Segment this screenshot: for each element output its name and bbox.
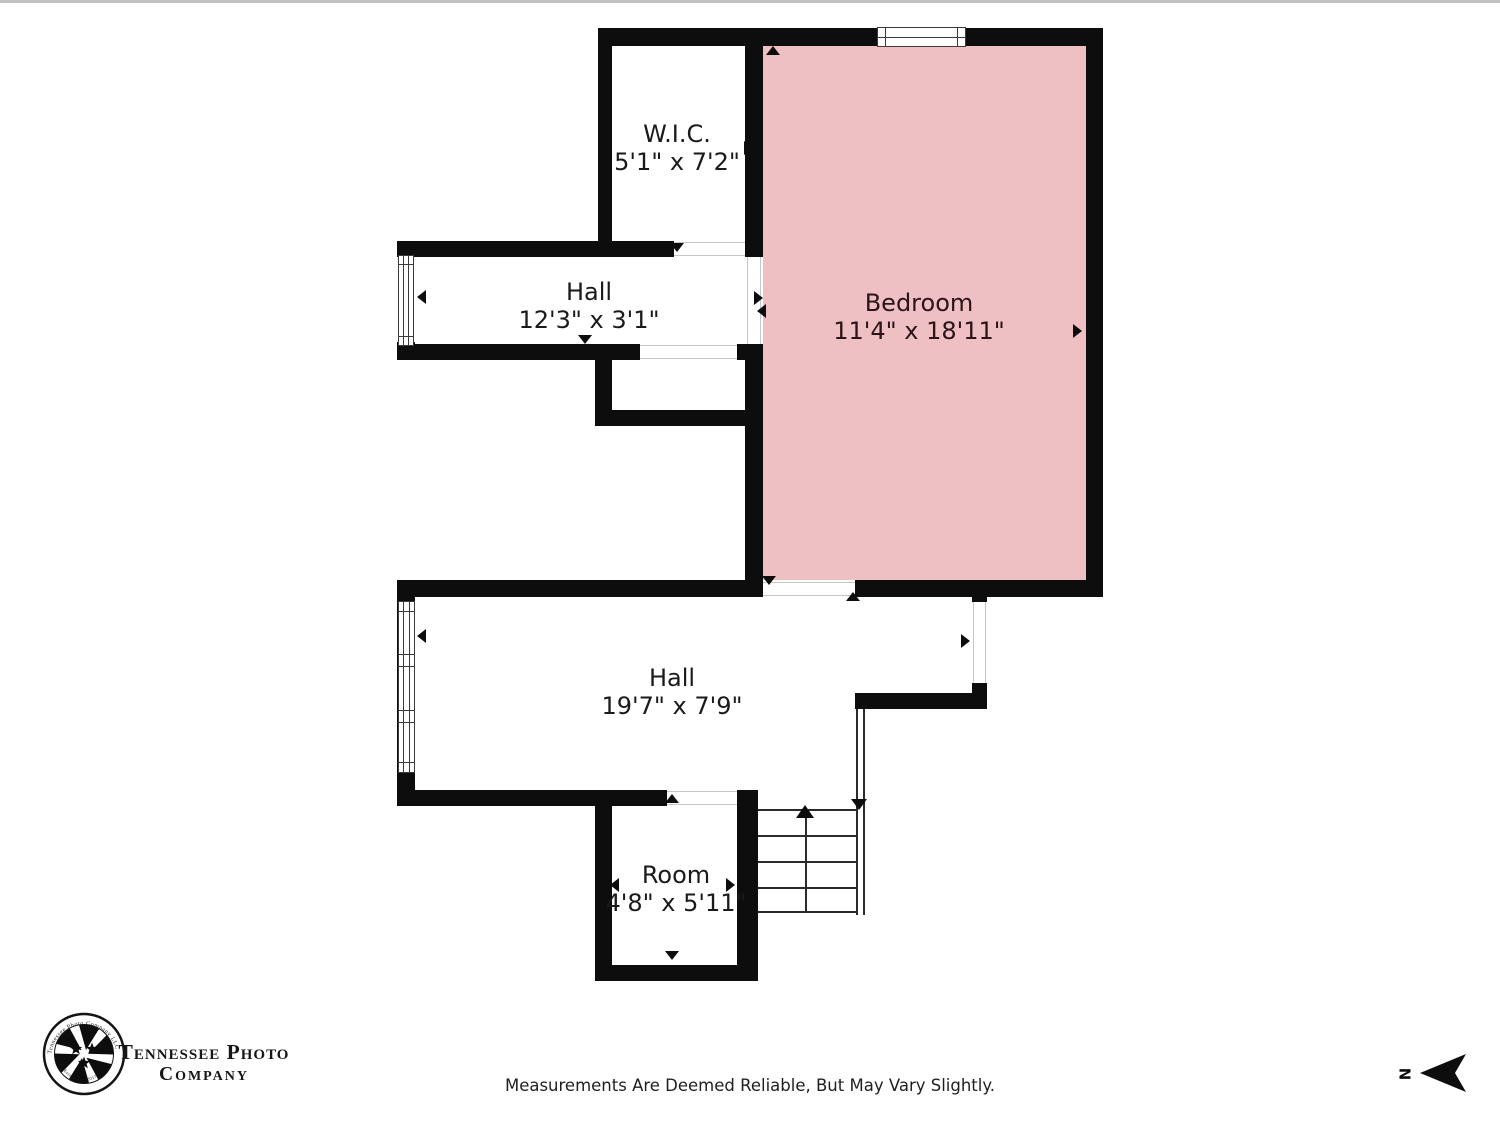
dimension-arrow-icon (762, 576, 776, 585)
room-dimensions: 12'3" x 3'1" (518, 306, 659, 334)
north-compass: N (1398, 1054, 1470, 1094)
stair-rail (863, 709, 865, 915)
door-opening (763, 582, 855, 583)
dimension-arrow-icon (961, 634, 970, 648)
top-border-line (0, 0, 1500, 3)
room-name: Hall (601, 664, 742, 692)
stair-up-arrow-icon (796, 805, 814, 818)
stair-tread (758, 861, 857, 863)
window (398, 601, 415, 773)
stair-tread (758, 835, 857, 837)
door-opening (763, 595, 855, 596)
dimension-arrow-icon (665, 794, 679, 803)
room-dimensions: 5'1" x 7'2" (614, 148, 740, 176)
dimension-arrow-icon (578, 335, 592, 344)
window (877, 27, 966, 47)
room-dimensions: 4'8" x 5'11" (605, 889, 746, 917)
room-label-hall-lower: Hall 19'7" x 7'9" (601, 664, 742, 720)
room-name: Bedroom (833, 289, 1005, 317)
door-opening (667, 804, 737, 805)
wall (972, 580, 987, 602)
room-dimensions: 11'4" x 18'11" (833, 317, 1005, 345)
stair-tread (758, 887, 857, 889)
dimension-arrow-icon (602, 141, 611, 155)
dimension-arrow-icon (670, 243, 684, 252)
dimension-arrow-icon (586, 247, 600, 256)
wall (595, 965, 758, 981)
wall (595, 410, 763, 426)
door-opening (674, 242, 745, 243)
room-label-room: Room 4'8" x 5'11" (605, 861, 746, 917)
dimension-arrow-icon (670, 36, 684, 45)
wall (1086, 28, 1103, 597)
room-label-hall-upper: Hall 12'3" x 3'1" (518, 278, 659, 334)
dimension-arrow-icon (417, 290, 426, 304)
dimension-arrow-icon (417, 629, 426, 643)
door-opening (985, 602, 986, 683)
dimension-arrow-icon (757, 304, 766, 318)
stair-rail (856, 709, 858, 915)
wall (745, 344, 763, 597)
disclaimer-text: Measurements Are Deemed Reliable, But Ma… (0, 1076, 1500, 1095)
door-opening (747, 257, 748, 344)
stair-tread (758, 911, 857, 913)
door-opening (674, 255, 745, 256)
stair-direction-line (805, 818, 807, 913)
north-arrow-icon (1420, 1054, 1466, 1092)
company-name-line1: Tennessee Photo (118, 1040, 290, 1064)
door-opening (667, 791, 737, 792)
floor-plan-canvas: W.I.C. 5'1" x 7'2" Hall 12'3" x 3'1" Bed… (0, 0, 1500, 1125)
stair-down-arrow-icon (851, 799, 867, 810)
dimension-arrow-icon (744, 141, 753, 155)
room-label-bedroom: Bedroom 11'4" x 18'11" (833, 289, 1005, 345)
wall (397, 580, 763, 597)
dimension-arrow-icon (766, 46, 780, 55)
room-dimensions: 19'7" x 7'9" (601, 692, 742, 720)
door-opening (640, 358, 737, 359)
wall (397, 241, 674, 257)
window (398, 255, 414, 346)
wall (855, 693, 987, 709)
door-opening (973, 602, 974, 683)
room-name: Room (605, 861, 746, 889)
door-opening (640, 345, 737, 346)
dimension-arrow-icon (754, 291, 763, 305)
dimension-arrow-icon (1073, 324, 1082, 338)
room-name: Hall (518, 278, 659, 306)
dimension-arrow-icon (665, 951, 679, 960)
wall (397, 790, 667, 806)
north-label: N (1395, 1068, 1413, 1081)
dimension-arrow-icon (846, 592, 860, 601)
room-name: W.I.C. (614, 120, 740, 148)
room-label-wic: W.I.C. 5'1" x 7'2" (614, 120, 740, 176)
